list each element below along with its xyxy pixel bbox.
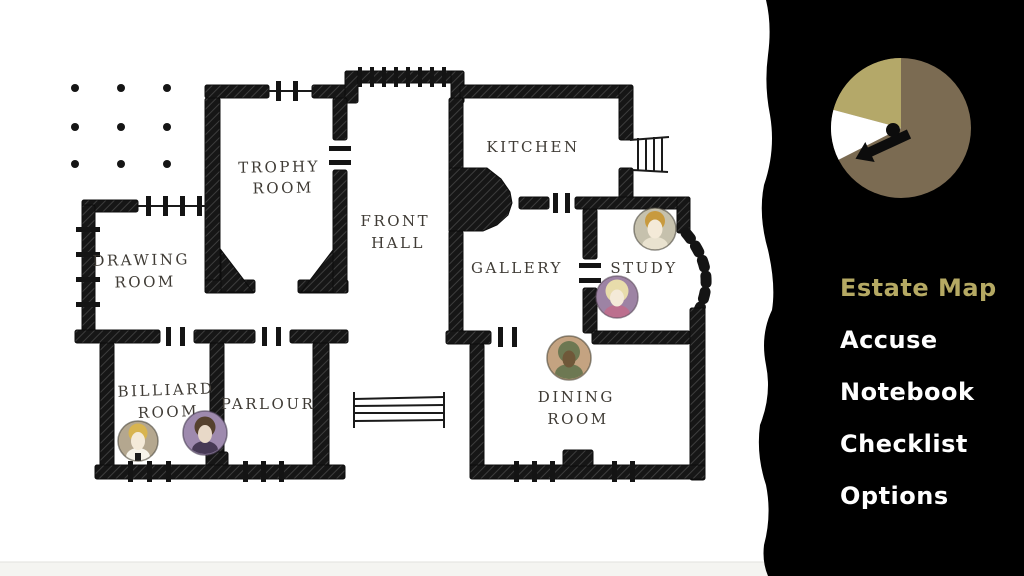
room-label-study[interactable]: STUDY xyxy=(610,259,677,277)
menu-panel: Estate Map Accuse Notebook Checklist Opt… xyxy=(788,0,1024,576)
suspect-token-dining[interactable] xyxy=(547,336,591,384)
game-screen: TROPHY ROOM FRONT HALL KITCHEN DRAWING R… xyxy=(0,0,1024,576)
room-label-trophy[interactable]: TROPHY ROOM xyxy=(238,157,328,198)
room-label-kitchen[interactable]: KITCHEN xyxy=(486,138,579,156)
menu-item-options[interactable]: Options xyxy=(840,482,997,510)
torn-paper-edge xyxy=(752,0,792,576)
bay-window-arc xyxy=(686,233,706,310)
estate-map: TROPHY ROOM FRONT HALL KITCHEN DRAWING R… xyxy=(0,0,792,576)
paper-edge-bottom xyxy=(0,562,792,576)
menu-item-checklist[interactable]: Checklist xyxy=(840,430,997,458)
suspect-token-study-lower[interactable] xyxy=(596,276,638,323)
room-label-front-hall[interactable]: FRONT HALL xyxy=(361,212,438,252)
stairs-icon xyxy=(630,137,669,172)
main-menu: Estate Map Accuse Notebook Checklist Opt… xyxy=(840,274,997,510)
suspect-token-billiard-left[interactable] xyxy=(118,421,158,466)
terrace-column-dots xyxy=(71,84,171,168)
menu-item-accuse[interactable]: Accuse xyxy=(840,326,997,354)
room-label-drawing[interactable]: DRAWING ROOM xyxy=(92,250,197,292)
menu-item-estate-map[interactable]: Estate Map xyxy=(840,274,997,302)
menu-item-notebook[interactable]: Notebook xyxy=(840,378,997,406)
room-label-parlour[interactable]: PARLOUR xyxy=(221,395,316,413)
suspect-token-study-upper[interactable] xyxy=(634,208,676,255)
turn-timer-dial xyxy=(831,58,971,198)
entry-steps-icon xyxy=(354,392,444,428)
room-label-dining[interactable]: DINING ROOM xyxy=(538,388,622,428)
room-label-gallery[interactable]: GALLERY xyxy=(471,259,563,277)
